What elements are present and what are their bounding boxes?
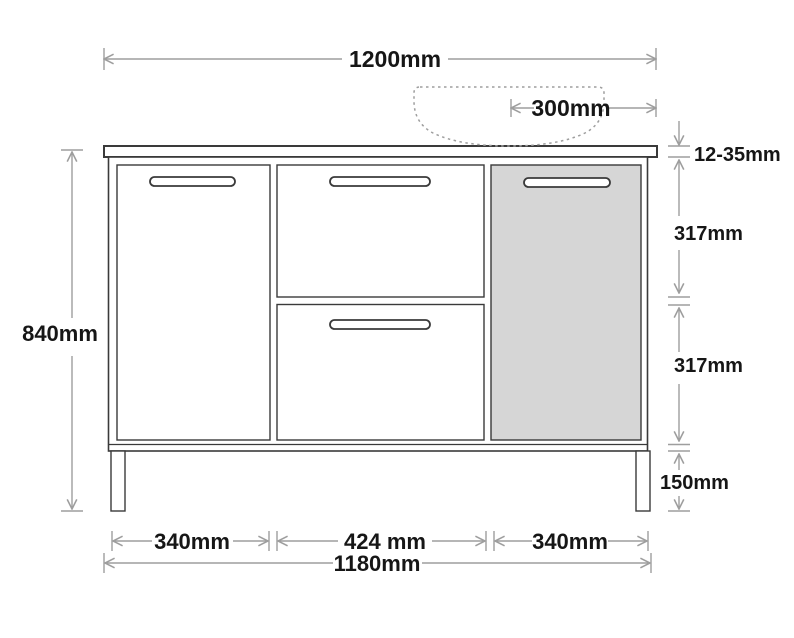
right-door-handle (524, 178, 610, 187)
left-door-handle (150, 177, 235, 186)
cabinet (104, 146, 657, 511)
dim-label-overall-height: 840mm (22, 321, 98, 346)
dim-label-basin-offset: 300mm (531, 95, 610, 121)
dim-label-upper-section: 317mm (674, 223, 743, 245)
dim-lower-section: 317mm (668, 308, 743, 451)
dim-cabinet-width: 1180mm (104, 551, 651, 576)
left-leg (111, 451, 125, 511)
dim-overall-top-width: 1200mm (104, 46, 656, 72)
dim-leg-height: 150mm (660, 454, 729, 511)
right-leg (636, 451, 650, 511)
dim-label-left-door-width: 340mm (154, 529, 230, 554)
vanity-dimension-diagram: 1200mm 300mm 12-35mm 317mm 317mm 150mm (0, 0, 794, 638)
dim-label-lower-section: 317mm (674, 355, 743, 377)
diagram-svg: 1200mm 300mm 12-35mm 317mm 317mm 150mm (0, 0, 794, 638)
right-door (491, 165, 641, 440)
top-drawer-handle (330, 177, 430, 186)
bottom-drawer-handle (330, 320, 430, 329)
dim-label-cabinet-width: 1180mm (334, 551, 421, 576)
dim-label-right-door-width: 340mm (532, 529, 608, 554)
dim-left-door-width: 340mm (112, 529, 269, 554)
left-door (117, 165, 270, 440)
dim-upper-section: 317mm (668, 160, 743, 305)
dim-basin-offset: 300mm (511, 95, 656, 121)
dim-label-overall-top-width: 1200mm (349, 46, 441, 72)
dim-label-countertop-thickness: 12-35mm (694, 144, 781, 166)
dim-right-door-width: 340mm (494, 529, 648, 554)
dim-countertop-thickness: 12-35mm (668, 121, 781, 166)
countertop (104, 146, 657, 157)
dim-overall-height: 840mm (22, 150, 98, 511)
dim-label-leg-height: 150mm (660, 472, 729, 494)
